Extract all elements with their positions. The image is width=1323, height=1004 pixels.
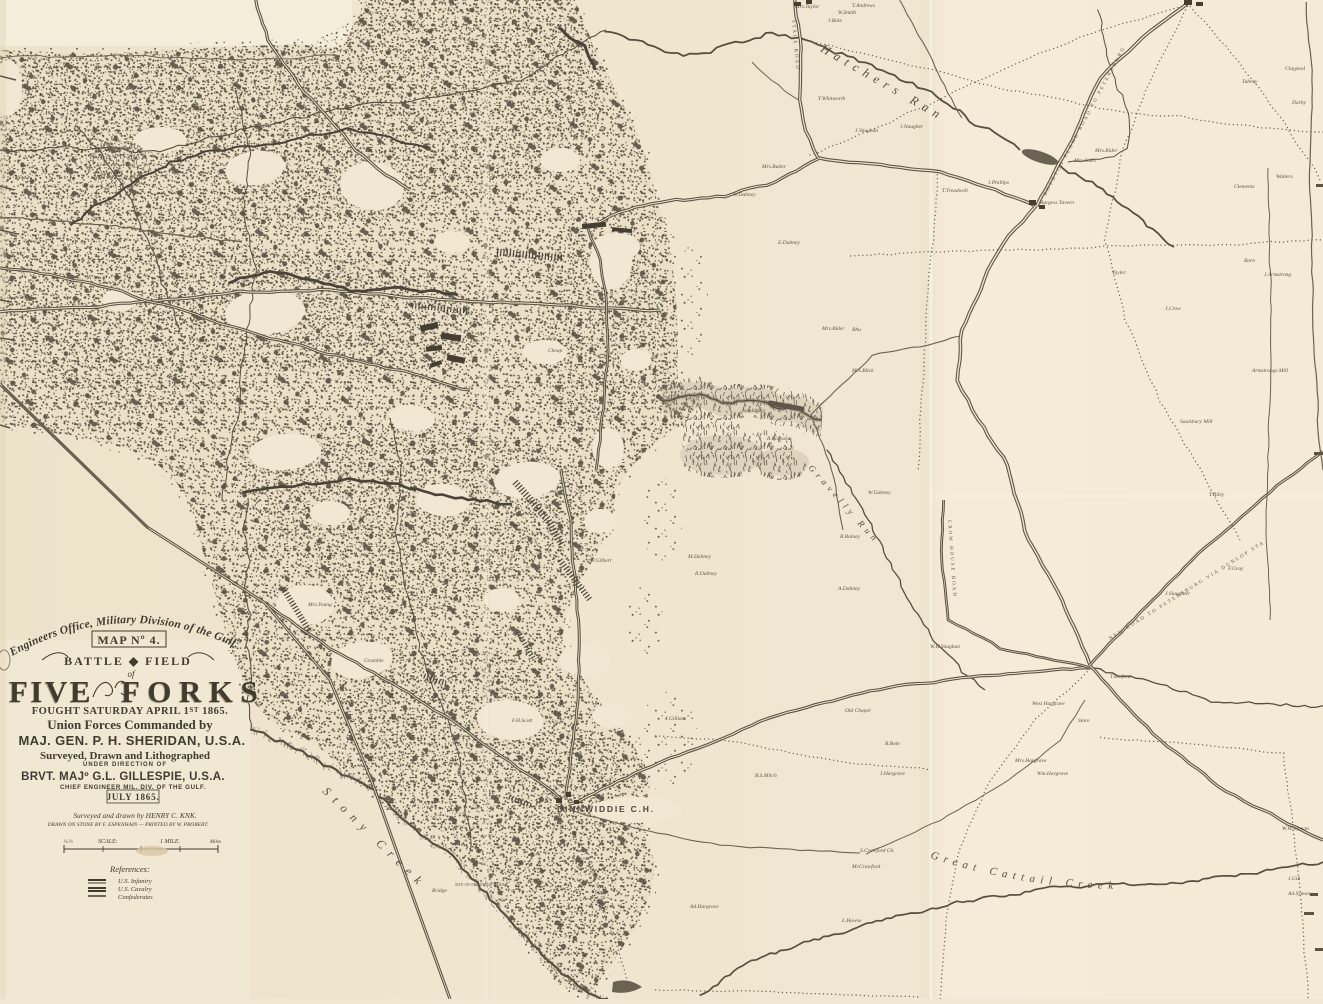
svg-text:Mrs.Young: Mrs.Young: [307, 602, 332, 608]
svg-text:BRVT. MAJº G.L. GILLESPIE, U.S: BRVT. MAJº G.L. GILLESPIE, U.S.A.: [21, 771, 225, 783]
svg-text:Mrs.Sides: Mrs.Sides: [1073, 158, 1096, 164]
svg-text:Confederates: Confederates: [118, 894, 153, 901]
svg-text:E.Dabney: E.Dabney: [777, 240, 800, 246]
svg-text:J.Bole: J.Bole: [828, 18, 842, 24]
svg-text:J.Naugher: J.Naugher: [900, 124, 924, 130]
svg-text:J.Phillips: J.Phillips: [988, 180, 1009, 186]
svg-text:J.Hargrave: J.Hargrave: [880, 771, 906, 777]
svg-text:Clements: Clements: [1234, 184, 1254, 190]
svg-text:S.Crawford Ch.: S.Crawford Ch.: [860, 847, 895, 854]
svg-text:T.Binford: T.Binford: [1110, 673, 1131, 680]
svg-text:BATTLE ◆ FIELD: BATTLE ◆ FIELD: [64, 654, 192, 668]
svg-text:Store: Store: [1078, 718, 1090, 724]
svg-text:T.Whitworth: T.Whitworth: [818, 96, 846, 102]
svg-text:J.Gilt: J.Gilt: [1288, 876, 1301, 882]
svg-text:Wm.Hargrave: Wm.Hargrave: [1037, 771, 1069, 777]
svg-text:A.Dabney: A.Dabney: [837, 586, 860, 592]
svg-text:FIVE: FIVE: [9, 674, 93, 709]
svg-text:J.Gilliam: J.Gilliam: [665, 716, 686, 722]
svg-text:T.Andrews: T.Andrews: [852, 3, 875, 9]
svg-text:T.Treadwell: T.Treadwell: [942, 188, 968, 194]
svg-text:McCrawford: McCrawford: [851, 863, 880, 870]
svg-text:U.S. Cavalry: U.S. Cavalry: [118, 886, 152, 893]
svg-text:R.Bole: R.Bole: [884, 741, 900, 747]
svg-text:W.H.Vaughan: W.H.Vaughan: [930, 644, 960, 650]
svg-text:T.Riley: T.Riley: [1209, 492, 1225, 498]
svg-text:SITE OF OLD STAGE BRIDGE: SITE OF OLD STAGE BRIDGE: [455, 882, 509, 887]
svg-text:L.Howse: L.Howse: [841, 918, 862, 924]
svg-text:W.Gilbert: W.Gilbert: [590, 558, 612, 564]
svg-text:FORKS: FORKS: [121, 674, 265, 709]
svg-text:¼ ½: ¼ ½: [64, 840, 73, 845]
svg-text:Armstrongs Mill: Armstrongs Mill: [1251, 368, 1288, 374]
svg-text:DRAWN ON STONE BY F. ESPENHAIN: DRAWN ON STONE BY F. ESPENHAIN — PRINTED…: [47, 822, 209, 828]
svg-text:Walters: Walters: [1276, 174, 1293, 180]
svg-text:U.S. Infantry: U.S. Infantry: [118, 878, 152, 885]
svg-text:Mrs.Butler: Mrs.Butler: [761, 164, 787, 170]
svg-text:Mrs.Bider: Mrs.Bider: [821, 326, 845, 332]
svg-text:W.W.Wyman: W.W.Wyman: [1282, 826, 1309, 832]
svg-text:DINNWIDDIE C.H.: DINNWIDDIE C.H.: [557, 804, 655, 814]
svg-text:J.Crow: J.Crow: [1165, 306, 1181, 312]
svg-text:R.Dabney: R.Dabney: [694, 571, 717, 577]
svg-text:Darby: Darby: [1291, 100, 1307, 106]
svg-text:Union Forces Commanded by: Union Forces Commanded by: [47, 717, 213, 732]
svg-text:Bridge: Bridge: [432, 888, 448, 894]
svg-text:Old Chapel: Old Chapel: [845, 708, 871, 714]
svg-text:B.S.Mitch: B.S.Mitch: [755, 773, 777, 779]
svg-text:MAP Nº 4.: MAP Nº 4.: [97, 633, 160, 647]
svg-text:Saulsbury Mill: Saulsbury Mill: [1180, 419, 1213, 425]
svg-text:Tayler: Tayler: [1112, 270, 1127, 276]
svg-text:Surveyed, Drawn and Lithograph: Surveyed, Drawn and Lithographed: [40, 750, 210, 762]
svg-text:Mrs.Hargrave: Mrs.Hargrave: [1014, 758, 1047, 764]
svg-text:R.Boisseau: R.Boisseau: [766, 436, 792, 442]
svg-text:Tabray: Tabray: [1242, 79, 1258, 85]
svg-text:Miles: Miles: [209, 840, 221, 845]
svg-text:R.Rainey: R.Rainey: [839, 534, 861, 540]
svg-text:1 MILE.: 1 MILE.: [160, 839, 180, 845]
svg-text:Lowlsbury: Lowlsbury: [741, 408, 766, 414]
svg-text:FOUGHT SATURDAY APRIL 1ST 1865: FOUGHT SATURDAY APRIL 1ST 1865.: [32, 706, 228, 717]
svg-text:J.Vaughan: J.Vaughan: [855, 128, 878, 134]
svg-text:Mrs.Blick: Mrs.Blick: [851, 368, 874, 374]
svg-text:SCALE:: SCALE:: [98, 839, 118, 845]
svg-text:Rhu: Rhu: [851, 327, 861, 333]
svg-text:W.Smith: W.Smith: [838, 10, 856, 16]
svg-text:Born: Born: [1244, 258, 1255, 264]
svg-text:UNDER DIRECTION OF: UNDER DIRECTION OF: [83, 762, 167, 768]
svg-text:J.Armstrong: J.Armstrong: [1264, 272, 1291, 278]
svg-text:Burgess Tavern: Burgess Tavern: [1040, 200, 1074, 206]
svg-text:West Hargrave: West Hargrave: [1032, 701, 1065, 707]
svg-text:F.H.Scott: F.H.Scott: [511, 718, 533, 724]
svg-text:Ad.Hargrave: Ad.Hargrave: [689, 904, 719, 910]
svg-text:M.Dabney: M.Dabney: [687, 554, 712, 560]
svg-text:JULY 1865.: JULY 1865.: [107, 792, 160, 802]
svg-text:MAJ. GEN. P. H. SHERIDAN, U.S.: MAJ. GEN. P. H. SHERIDAN, U.S.A.: [18, 733, 245, 748]
svg-text:Mrs.Rider: Mrs.Rider: [1094, 148, 1118, 154]
svg-text:Surveyed and drawn by HENRY C.: Surveyed and drawn by HENRY C. KNK.: [73, 811, 197, 820]
svg-text:Ad.Symon: Ad.Symon: [1287, 891, 1310, 897]
svg-text:References:: References:: [109, 864, 150, 874]
svg-text:W.Gabney: W.Gabney: [868, 490, 891, 496]
svg-text:Claypool: Claypool: [1285, 66, 1306, 72]
svg-text:Grumble: Grumble: [364, 658, 384, 664]
svg-text:Cheap: Cheap: [548, 348, 563, 354]
svg-text:W.Dabney: W.Dabney: [733, 192, 756, 198]
